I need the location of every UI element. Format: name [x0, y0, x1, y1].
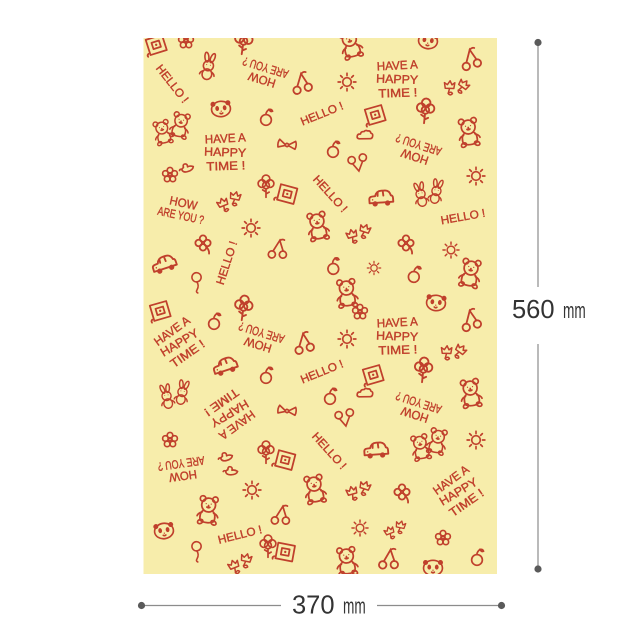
svg-text:mm: mm [563, 298, 586, 323]
svg-text:mm: mm [343, 593, 366, 618]
svg-text:560: 560 [512, 296, 555, 324]
svg-text:370: 370 [292, 592, 335, 620]
